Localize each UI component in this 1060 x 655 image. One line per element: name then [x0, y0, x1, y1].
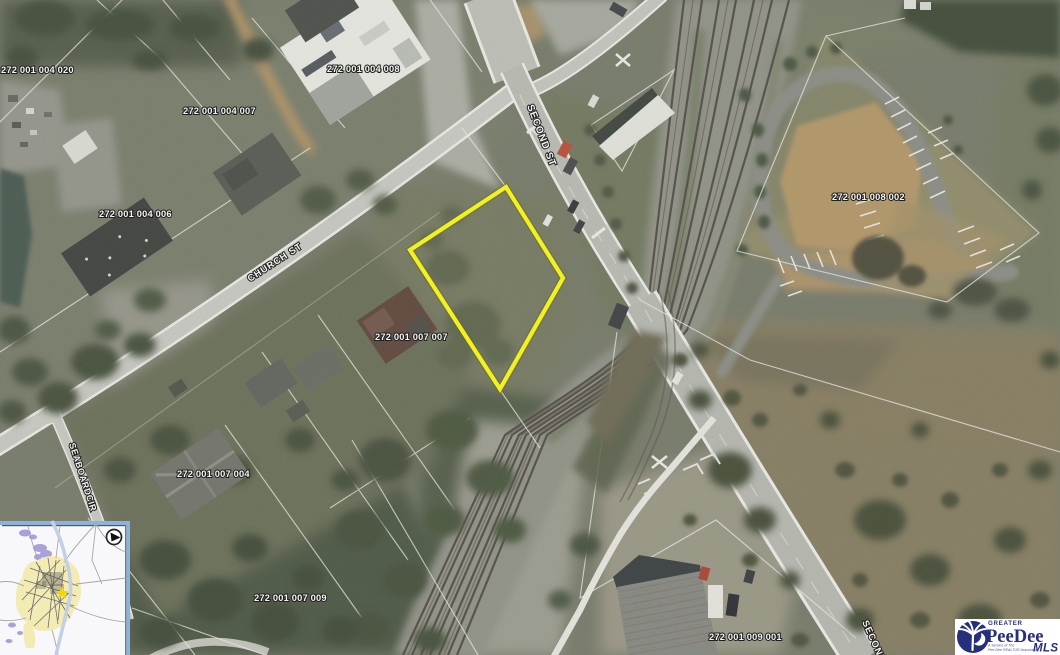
svg-text:PeeDee: PeeDee	[986, 627, 1044, 647]
svg-text:GREATER: GREATER	[988, 620, 1023, 627]
svg-text:Pee Dee REALTOR Association: Pee Dee REALTOR Association	[988, 648, 1039, 652]
